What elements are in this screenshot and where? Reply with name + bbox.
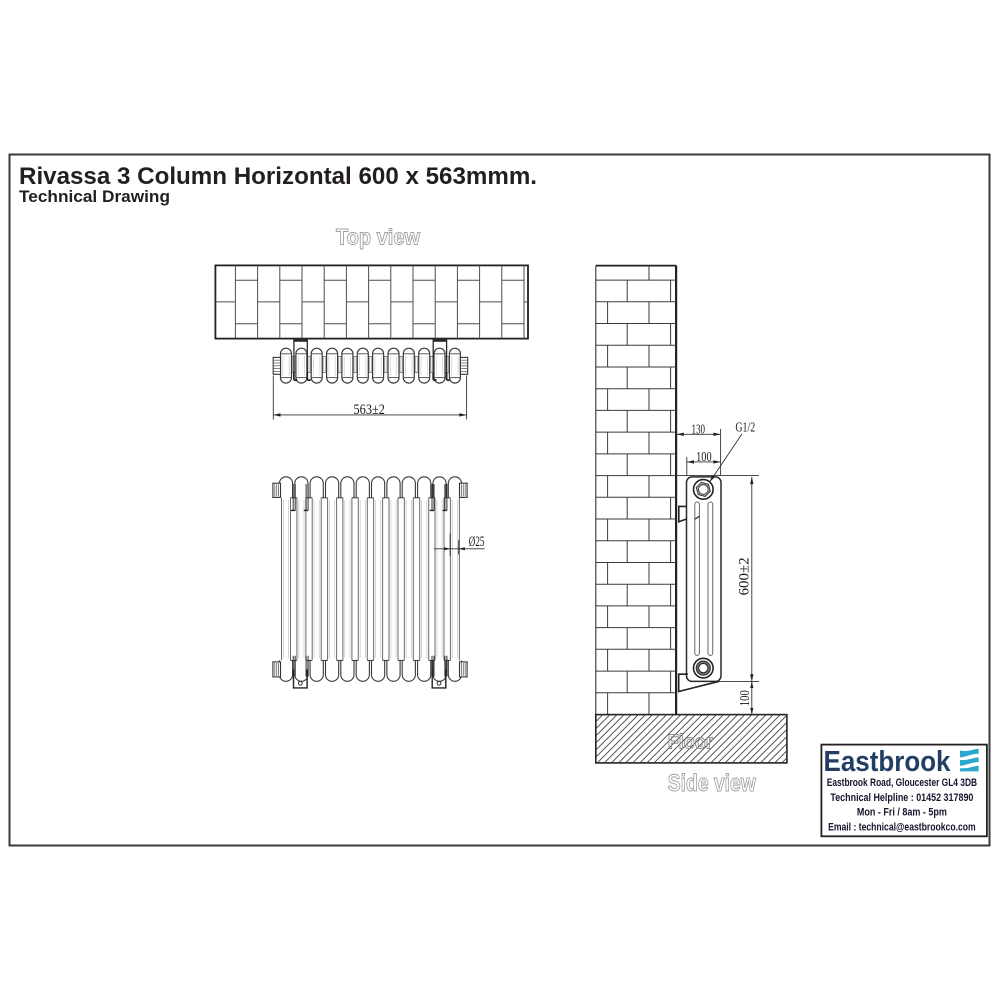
- svg-text:Eastbrook Road, Gloucester GL4: Eastbrook Road, Gloucester GL4 3DB: [827, 777, 977, 789]
- svg-text:600±2: 600±2: [737, 557, 753, 595]
- svg-text:Eastbrook: Eastbrook: [824, 746, 951, 778]
- svg-text:Email : technical@eastbrookco.: Email : technical@eastbrookco.com: [828, 821, 976, 833]
- svg-text:130: 130: [691, 422, 705, 437]
- svg-text:100: 100: [696, 450, 712, 465]
- svg-text:Technical Drawing: Technical Drawing: [19, 187, 170, 206]
- svg-text:563±2: 563±2: [354, 402, 385, 418]
- svg-text:100: 100: [738, 690, 753, 706]
- svg-text:Technical Helpline : 01452 317: Technical Helpline : 01452 317890: [830, 792, 973, 804]
- svg-text:G1/2: G1/2: [735, 420, 755, 435]
- svg-text:Ø25: Ø25: [469, 534, 485, 550]
- svg-text:Side view: Side view: [668, 770, 756, 797]
- svg-text:Floor: Floor: [668, 732, 713, 754]
- svg-text:Top view: Top view: [336, 224, 421, 249]
- svg-text:Mon - Fri / 8am - 5pm: Mon - Fri / 8am - 5pm: [857, 807, 947, 819]
